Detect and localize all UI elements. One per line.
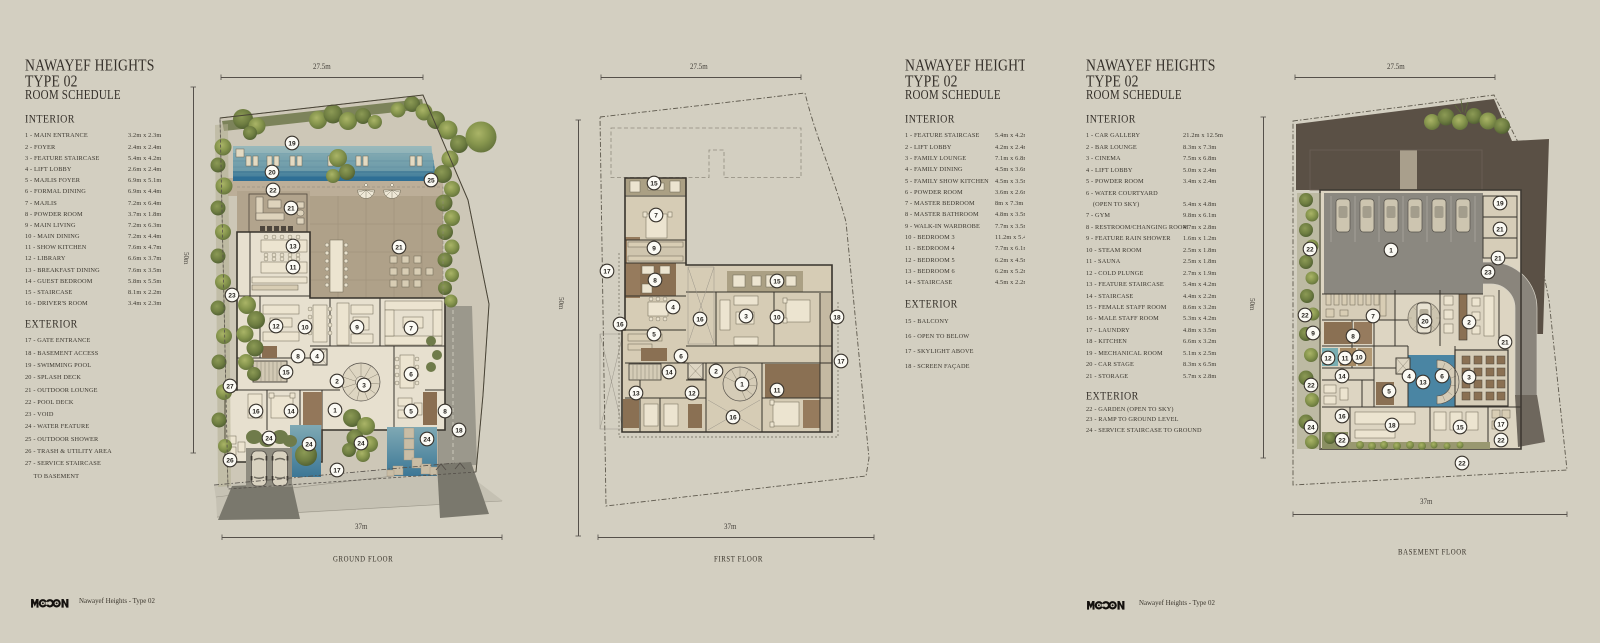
svg-text:24: 24 [305,442,313,449]
svg-text:3: 3 [744,314,748,321]
svg-text:23: 23 [1484,270,1492,277]
svg-text:13: 13 [632,391,640,398]
svg-text:16: 16 [1338,414,1346,421]
svg-text:22: 22 [1458,461,1466,468]
svg-text:17: 17 [603,269,611,276]
svg-text:24: 24 [357,441,365,448]
svg-text:13: 13 [289,244,297,251]
svg-text:10: 10 [301,325,309,332]
svg-text:25: 25 [427,178,435,185]
svg-text:5: 5 [1387,389,1391,396]
svg-text:19: 19 [1496,201,1504,208]
svg-text:17: 17 [1497,422,1505,429]
svg-text:16: 16 [252,409,260,416]
svg-text:15: 15 [282,370,290,377]
svg-text:14: 14 [665,370,673,377]
svg-text:11: 11 [1342,356,1349,363]
svg-text:9: 9 [1311,331,1315,338]
svg-text:17: 17 [333,468,341,475]
svg-text:5: 5 [409,409,413,416]
svg-text:22: 22 [1497,438,1505,445]
svg-text:10: 10 [773,315,781,322]
svg-text:26: 26 [226,458,234,465]
svg-text:18: 18 [455,428,463,435]
svg-text:20: 20 [1421,319,1429,326]
svg-text:22: 22 [1338,438,1346,445]
svg-text:1: 1 [1389,248,1393,255]
svg-text:18: 18 [833,315,841,322]
svg-text:15: 15 [1456,425,1464,432]
svg-text:8: 8 [443,409,447,416]
svg-text:12: 12 [688,391,696,398]
svg-text:10: 10 [1355,355,1363,362]
svg-text:1: 1 [740,382,744,389]
svg-text:15: 15 [650,181,658,188]
svg-text:8: 8 [296,354,300,361]
svg-text:4: 4 [315,354,319,361]
svg-text:12: 12 [272,324,280,331]
svg-text:9: 9 [652,246,656,253]
svg-text:20: 20 [268,170,276,177]
svg-text:27: 27 [226,384,234,391]
svg-text:7: 7 [654,213,658,220]
svg-text:1: 1 [333,408,337,415]
svg-text:18: 18 [1388,423,1396,430]
svg-text:11: 11 [774,388,781,395]
svg-text:4: 4 [671,305,675,312]
svg-text:16: 16 [616,322,624,329]
svg-text:17: 17 [837,359,845,366]
svg-text:7: 7 [1371,314,1375,321]
svg-text:19: 19 [288,141,296,148]
svg-text:22: 22 [1301,313,1309,320]
svg-text:3: 3 [1467,375,1471,382]
svg-text:11: 11 [290,265,297,272]
svg-text:21: 21 [287,206,295,213]
svg-text:6: 6 [679,354,683,361]
svg-text:6: 6 [1440,374,1444,381]
svg-text:8: 8 [1351,334,1355,341]
svg-text:15: 15 [773,279,781,286]
svg-text:12: 12 [1324,356,1332,363]
svg-text:22: 22 [1306,247,1314,254]
svg-text:16: 16 [729,415,737,422]
svg-text:7: 7 [409,326,413,333]
svg-text:24: 24 [1307,425,1315,432]
svg-text:14: 14 [1338,374,1346,381]
svg-text:21: 21 [1496,227,1504,234]
svg-text:21: 21 [1494,256,1502,263]
svg-text:13: 13 [1419,380,1427,387]
svg-text:22: 22 [1307,383,1315,390]
svg-text:23: 23 [228,293,236,300]
svg-text:22: 22 [269,188,277,195]
svg-text:24: 24 [265,436,273,443]
svg-text:21: 21 [395,245,403,252]
svg-text:8: 8 [653,278,657,285]
svg-text:2: 2 [335,379,339,386]
svg-text:24: 24 [423,437,431,444]
svg-text:9: 9 [355,325,359,332]
svg-text:5: 5 [652,332,656,339]
svg-text:4: 4 [1407,374,1411,381]
svg-text:3: 3 [362,383,366,390]
svg-text:2: 2 [1467,320,1471,327]
svg-text:21: 21 [1501,340,1509,347]
svg-text:2: 2 [714,369,718,376]
svg-text:6: 6 [409,372,413,379]
svg-text:16: 16 [696,317,704,324]
svg-text:14: 14 [287,409,295,416]
